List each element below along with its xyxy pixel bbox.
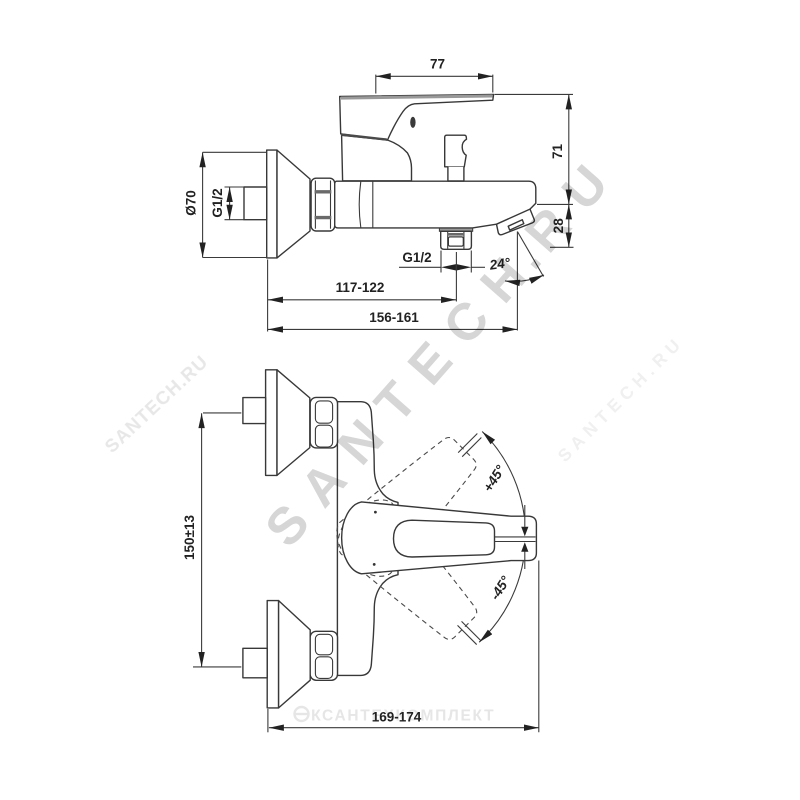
svg-text:156-161: 156-161 <box>369 310 419 325</box>
svg-text:G1/2: G1/2 <box>210 188 225 217</box>
svg-text:77: 77 <box>430 57 445 72</box>
svg-text:71: 71 <box>550 144 565 160</box>
svg-text:SANTECH.RU: SANTECH.RU <box>554 332 688 466</box>
svg-text:Ø70: Ø70 <box>184 190 199 216</box>
svg-text:150±13: 150±13 <box>182 515 197 560</box>
svg-text:117-122: 117-122 <box>336 280 385 295</box>
svg-text:G1/2: G1/2 <box>402 250 431 265</box>
svg-text:SANTECH.RU: SANTECH.RU <box>100 351 212 457</box>
svg-text:+45°: +45° <box>480 462 508 494</box>
svg-text:К: К <box>311 708 321 725</box>
svg-text:169-174: 169-174 <box>372 710 422 725</box>
svg-text:-45°: -45° <box>487 573 513 603</box>
